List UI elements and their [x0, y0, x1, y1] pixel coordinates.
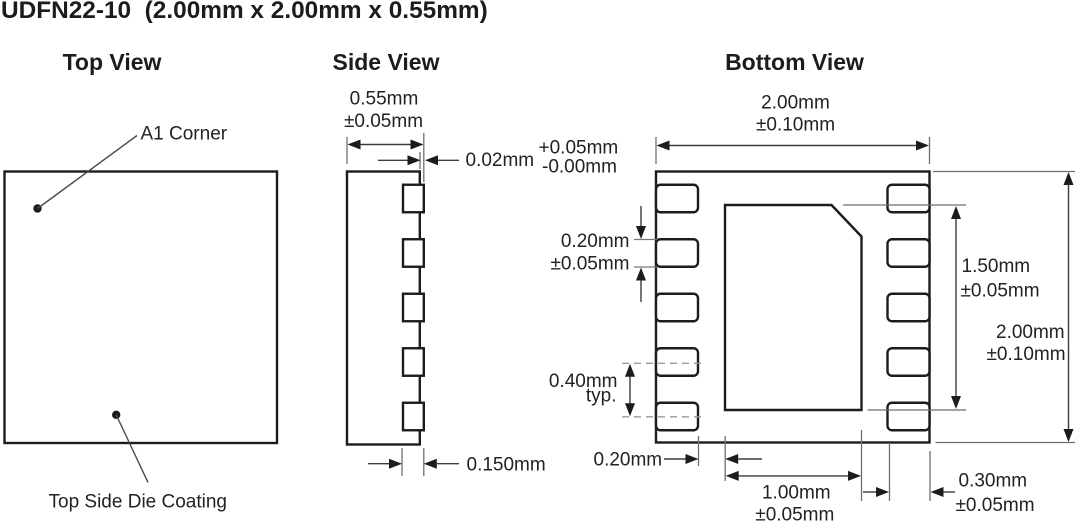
svg-text:Top View: Top View: [63, 49, 162, 75]
svg-text:A1 Corner: A1 Corner: [141, 124, 228, 145]
svg-text:Bottom View: Bottom View: [725, 49, 864, 75]
svg-text:+0.05mm: +0.05mm: [539, 138, 619, 159]
svg-text:0.150mm: 0.150mm: [467, 455, 546, 476]
svg-text:0.02mm: 0.02mm: [466, 150, 535, 171]
svg-text:±0.05mm: ±0.05mm: [961, 281, 1040, 302]
svg-text:UDFN22-10 (2.00mm x 2.00mm x: UDFN22-10 (2.00mm x 2.00mm x 0.55mm): [1, 0, 488, 24]
svg-text:typ.: typ.: [586, 386, 617, 407]
svg-text:0.55mm: 0.55mm: [350, 89, 419, 110]
svg-text:2.00mm: 2.00mm: [761, 93, 830, 114]
svg-text:±0.10mm: ±0.10mm: [756, 115, 835, 136]
svg-text:2.00mm: 2.00mm: [996, 322, 1065, 343]
svg-text:0.20mm: 0.20mm: [561, 231, 630, 252]
svg-text:0.20mm: 0.20mm: [594, 450, 663, 471]
svg-text:±0.05mm: ±0.05mm: [956, 495, 1035, 516]
svg-text:1.50mm: 1.50mm: [962, 256, 1031, 277]
svg-text:0.30mm: 0.30mm: [959, 471, 1028, 492]
svg-text:-0.00mm: -0.00mm: [542, 157, 617, 178]
svg-text:±0.05mm: ±0.05mm: [755, 505, 834, 522]
svg-text:±0.05mm: ±0.05mm: [344, 111, 423, 132]
svg-text:1.00mm: 1.00mm: [762, 483, 831, 504]
svg-text:±0.05mm: ±0.05mm: [550, 254, 629, 275]
svg-text:±0.10mm: ±0.10mm: [987, 344, 1066, 365]
svg-text:Top Side Die Coating: Top Side Die Coating: [49, 492, 228, 513]
svg-text:Side View: Side View: [333, 49, 440, 75]
